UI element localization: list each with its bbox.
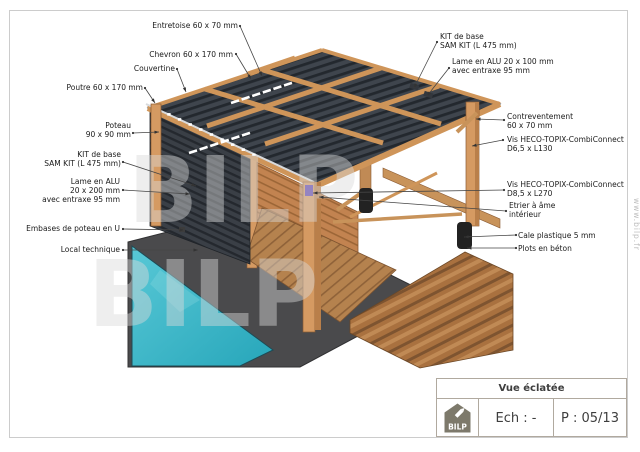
annotation-text-entretoise: Entretoise 60 x 70 mm (152, 21, 238, 30)
annotation-text-contreventement: Contreventement60 x 70 mm (507, 112, 573, 130)
annotation-vis-heco-d65: Vis HECO-TOPIX-CombiConnectD6,5 x L130 (472, 135, 624, 153)
title-block: Vue éclatée BILP Ech : - P : 05/13 (436, 378, 627, 437)
annotation-text-kit-base-gauche: KIT de baseSAM KIT (L 475 mm) (44, 150, 121, 168)
annotation-text-cale-plastique: Cale plastique 5 mm (518, 231, 596, 240)
annotation-text-vis-heco-d65: Vis HECO-TOPIX-CombiConnectD6,5 x L130 (507, 135, 624, 153)
annotation-plots-beton: Plots en béton (467, 244, 572, 253)
annotation-cale-plastique: Cale plastique 5 mm (464, 231, 596, 240)
annotation-text-vis-heco-d85: Vis HECO-TOPIX-CombiConnectD8,5 x L270 (507, 180, 624, 198)
annotation-text-poteau: Poteau90 x 90 mm (86, 121, 132, 139)
drawing-title: Vue éclatée (437, 379, 626, 399)
watermark-url: www.bilp.fr (632, 198, 640, 251)
annotation-text-etrier: Etrier à âmeintérieur (509, 201, 556, 219)
watermark-brand: BILP (88, 241, 318, 348)
annotation-text-couvertine: Couvertine (134, 64, 175, 73)
scale-value: Ech : - (479, 399, 554, 437)
annotation-contreventement: Contreventement60 x 70 mm (476, 112, 573, 130)
logo-text: BILP (448, 423, 467, 432)
annotation-text-lame-alu-200: Lame en ALU20 x 200 mmavec entraxe 95 mm (42, 177, 120, 204)
page-number: P : 05/13 (554, 399, 626, 437)
annotation-text-poutre: Poutre 60 x 170 mm (66, 83, 143, 92)
annotation-text-plots-beton: Plots en béton (518, 244, 572, 253)
annotation-text-kit-base-droite: KIT de baseSAM KIT (L 475 mm) (440, 32, 517, 50)
bilp-logo: BILP (437, 399, 479, 437)
annotation-poutre: Poutre 60 x 170 mm (66, 83, 155, 103)
watermark-brand: BILP (128, 137, 358, 244)
right-corner-post-side (475, 102, 479, 226)
drawing-sheet: BILP BILP www.bilp.fr Entretoise 60 x 70… (0, 0, 640, 452)
annotation-text-local-technique: Local technique (61, 245, 121, 254)
concrete-plot-right (457, 222, 472, 249)
annotation-text-embases: Embases de poteau en U (26, 224, 120, 233)
leader-arrow (183, 87, 186, 92)
house-pencil-icon: BILP (444, 403, 471, 433)
leader-arrow (151, 98, 155, 103)
annotation-text-chevron: Chevron 60 x 170 mm (149, 50, 233, 59)
annotation-text-lame-alu-100: Lame en ALU 20 x 100 mmavec entraxe 95 m… (452, 57, 554, 75)
